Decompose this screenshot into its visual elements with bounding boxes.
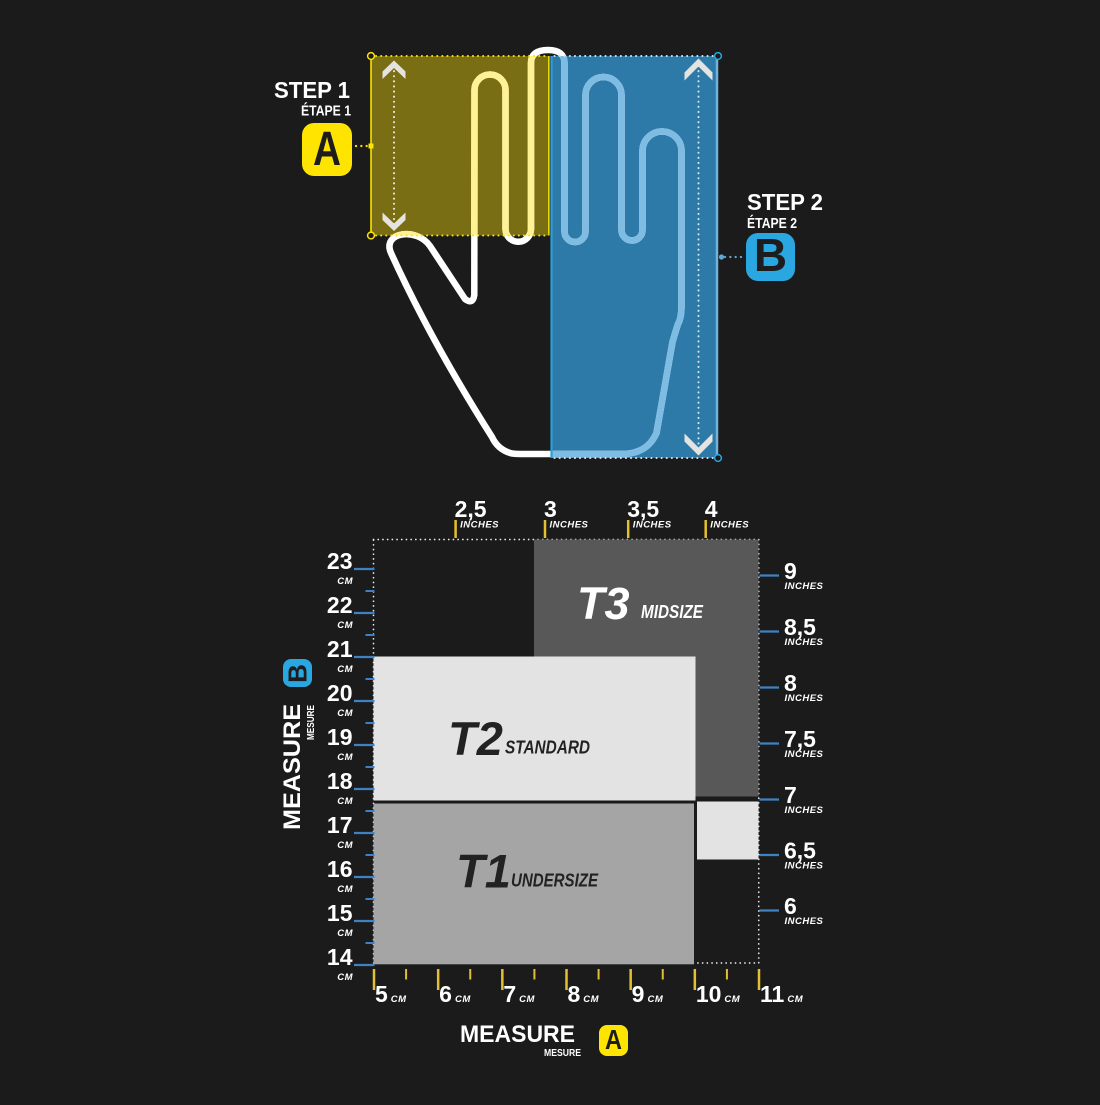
svg-text:INCHES: INCHES [550, 520, 589, 531]
svg-text:19: 19 [327, 724, 353, 750]
svg-text:INCHES: INCHES [785, 749, 824, 760]
svg-text:16: 16 [327, 856, 353, 882]
svg-text:T3: T3 [577, 578, 630, 629]
svg-text:INCHES: INCHES [785, 805, 824, 816]
svg-text:CM: CM [337, 972, 353, 983]
svg-text:STEP 2: STEP 2 [747, 189, 823, 215]
svg-text:INCHES: INCHES [785, 861, 824, 872]
svg-text:CM: CM [337, 576, 353, 587]
svg-text:A: A [313, 123, 341, 176]
svg-text:CM: CM [337, 664, 353, 675]
svg-text:21: 21 [327, 636, 353, 662]
svg-text:17: 17 [327, 812, 353, 838]
svg-text:MEASURE: MEASURE [460, 1021, 575, 1048]
svg-text:INCHES: INCHES [785, 916, 824, 927]
svg-text:B: B [283, 664, 313, 683]
svg-text:18: 18 [327, 768, 353, 794]
svg-text:CM: CM [337, 796, 353, 807]
svg-text:STANDARD: STANDARD [505, 738, 590, 758]
svg-text:INCHES: INCHES [785, 581, 824, 592]
svg-text:MESURE: MESURE [306, 705, 317, 740]
svg-text:4: 4 [705, 496, 718, 522]
svg-text:2,5: 2,5 [455, 496, 487, 522]
svg-text:CM: CM [337, 928, 353, 939]
svg-text:22: 22 [327, 592, 353, 618]
svg-text:MEASURE: MEASURE [279, 704, 306, 830]
svg-text:INCHES: INCHES [710, 520, 749, 531]
svg-text:ÉTAPE 1: ÉTAPE 1 [301, 103, 351, 120]
svg-text:MESURE: MESURE [544, 1047, 581, 1059]
svg-text:MIDSIZE: MIDSIZE [641, 602, 704, 622]
svg-text:STEP 1: STEP 1 [274, 77, 350, 103]
svg-text:INCHES: INCHES [633, 520, 672, 531]
svg-text:20: 20 [327, 680, 353, 706]
svg-text:INCHES: INCHES [460, 520, 499, 531]
svg-text:CM: CM [337, 620, 353, 631]
svg-text:CM: CM [337, 840, 353, 851]
svg-text:A: A [605, 1024, 622, 1055]
svg-text:15: 15 [327, 900, 353, 926]
svg-text:14: 14 [327, 944, 353, 970]
svg-text:CM: CM [337, 884, 353, 895]
svg-text:UNDERSIZE: UNDERSIZE [511, 871, 599, 891]
svg-text:B: B [754, 229, 787, 281]
svg-text:CM: CM [337, 752, 353, 763]
svg-text:3,5: 3,5 [627, 496, 659, 522]
svg-text:3: 3 [544, 496, 557, 522]
svg-text:T1: T1 [456, 845, 511, 898]
svg-text:INCHES: INCHES [785, 693, 824, 704]
svg-text:INCHES: INCHES [785, 637, 824, 648]
svg-text:23: 23 [327, 548, 353, 574]
svg-text:T2: T2 [448, 712, 503, 765]
svg-text:CM: CM [337, 708, 353, 719]
